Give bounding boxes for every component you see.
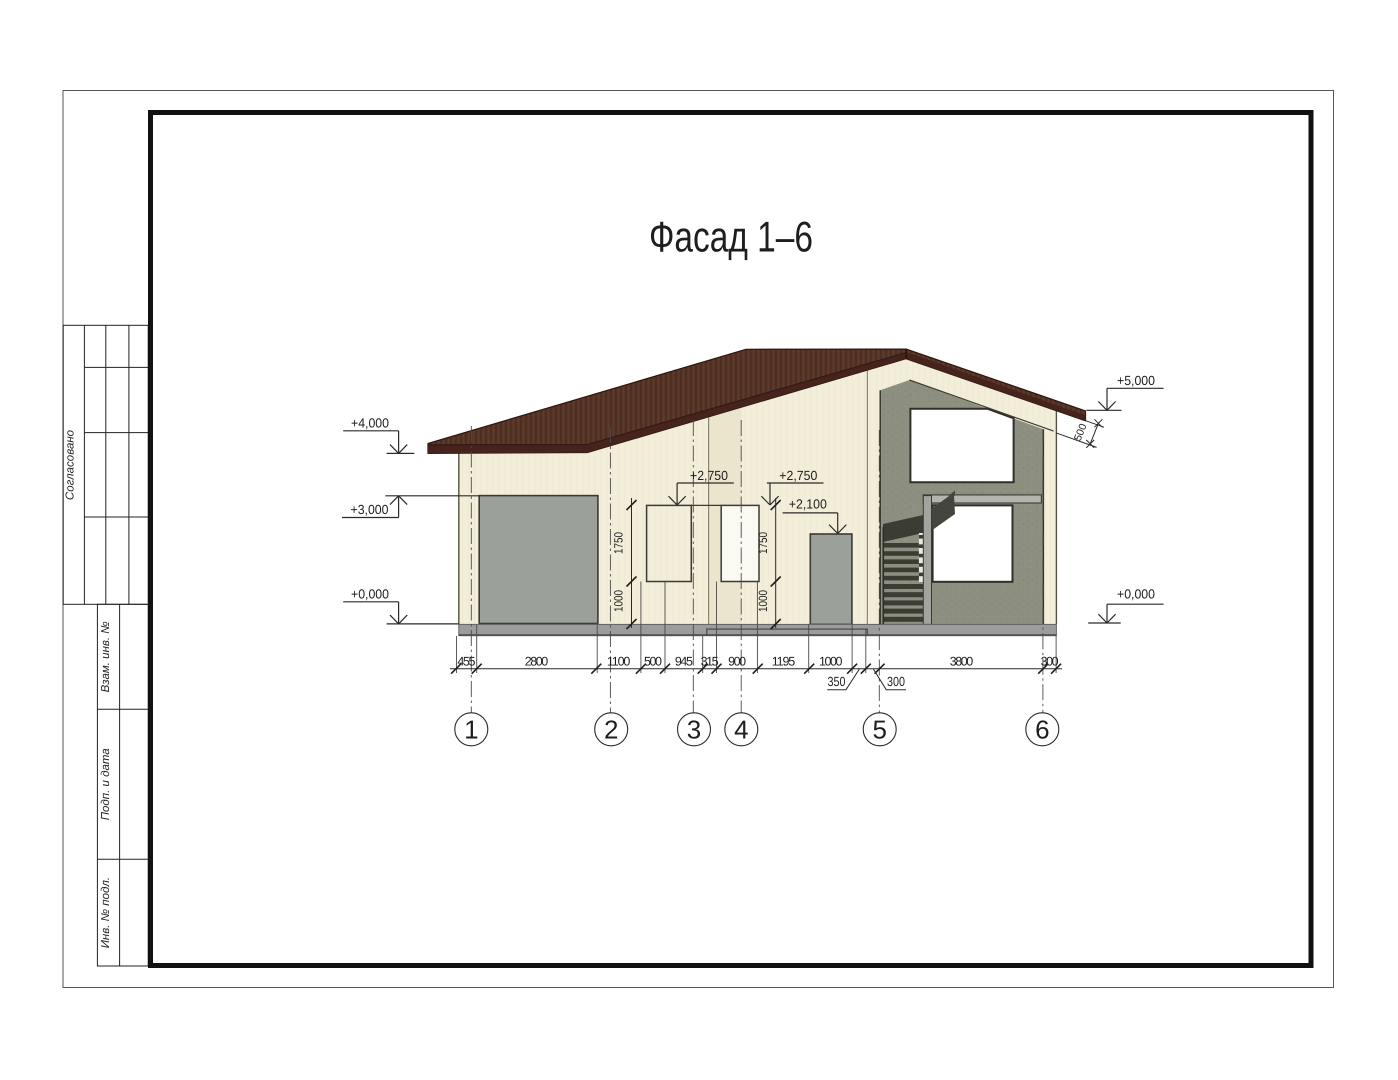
svg-text:Инв. № подл.: Инв. № подл. bbox=[100, 877, 112, 948]
svg-text:+5,000: +5,000 bbox=[1117, 373, 1155, 388]
svg-text:1000: 1000 bbox=[756, 590, 770, 612]
svg-text:1: 1 bbox=[464, 715, 478, 745]
svg-text:2800: 2800 bbox=[525, 655, 549, 669]
svg-text:2: 2 bbox=[604, 715, 618, 745]
svg-text:Взам. инв. №: Взам. инв. № bbox=[100, 621, 112, 693]
svg-text:1195: 1195 bbox=[772, 655, 796, 669]
svg-text:+2,750: +2,750 bbox=[690, 468, 728, 483]
svg-text:3800: 3800 bbox=[950, 655, 974, 669]
svg-text:3: 3 bbox=[687, 715, 701, 745]
svg-text:300: 300 bbox=[887, 674, 905, 689]
svg-text:350: 350 bbox=[828, 674, 846, 689]
svg-text:+4,000: +4,000 bbox=[351, 416, 389, 431]
svg-text:1750: 1750 bbox=[612, 532, 626, 554]
svg-text:300: 300 bbox=[1041, 655, 1059, 669]
svg-text:1100: 1100 bbox=[607, 655, 631, 669]
svg-text:315: 315 bbox=[701, 655, 719, 669]
svg-text:Подп. и дата: Подп. и дата bbox=[100, 748, 112, 820]
svg-text:1750: 1750 bbox=[756, 532, 770, 554]
svg-text:5: 5 bbox=[872, 715, 886, 745]
svg-text:4: 4 bbox=[734, 715, 748, 745]
svg-text:455: 455 bbox=[457, 655, 475, 669]
svg-text:Согласовано: Согласовано bbox=[65, 429, 77, 500]
svg-text:+2,100: +2,100 bbox=[789, 497, 827, 512]
svg-text:6: 6 bbox=[1035, 715, 1049, 745]
svg-text:+0,000: +0,000 bbox=[1117, 587, 1155, 602]
svg-text:1000: 1000 bbox=[612, 590, 626, 612]
svg-text:+3,000: +3,000 bbox=[351, 502, 389, 517]
svg-text:+0,000: +0,000 bbox=[351, 587, 389, 602]
svg-text:1000: 1000 bbox=[819, 655, 843, 669]
svg-text:500: 500 bbox=[644, 655, 662, 669]
svg-text:Фасад 1–6: Фасад 1–6 bbox=[649, 214, 813, 262]
svg-text:945: 945 bbox=[675, 655, 693, 669]
svg-text:900: 900 bbox=[728, 655, 746, 669]
svg-text:+2,750: +2,750 bbox=[779, 468, 817, 483]
